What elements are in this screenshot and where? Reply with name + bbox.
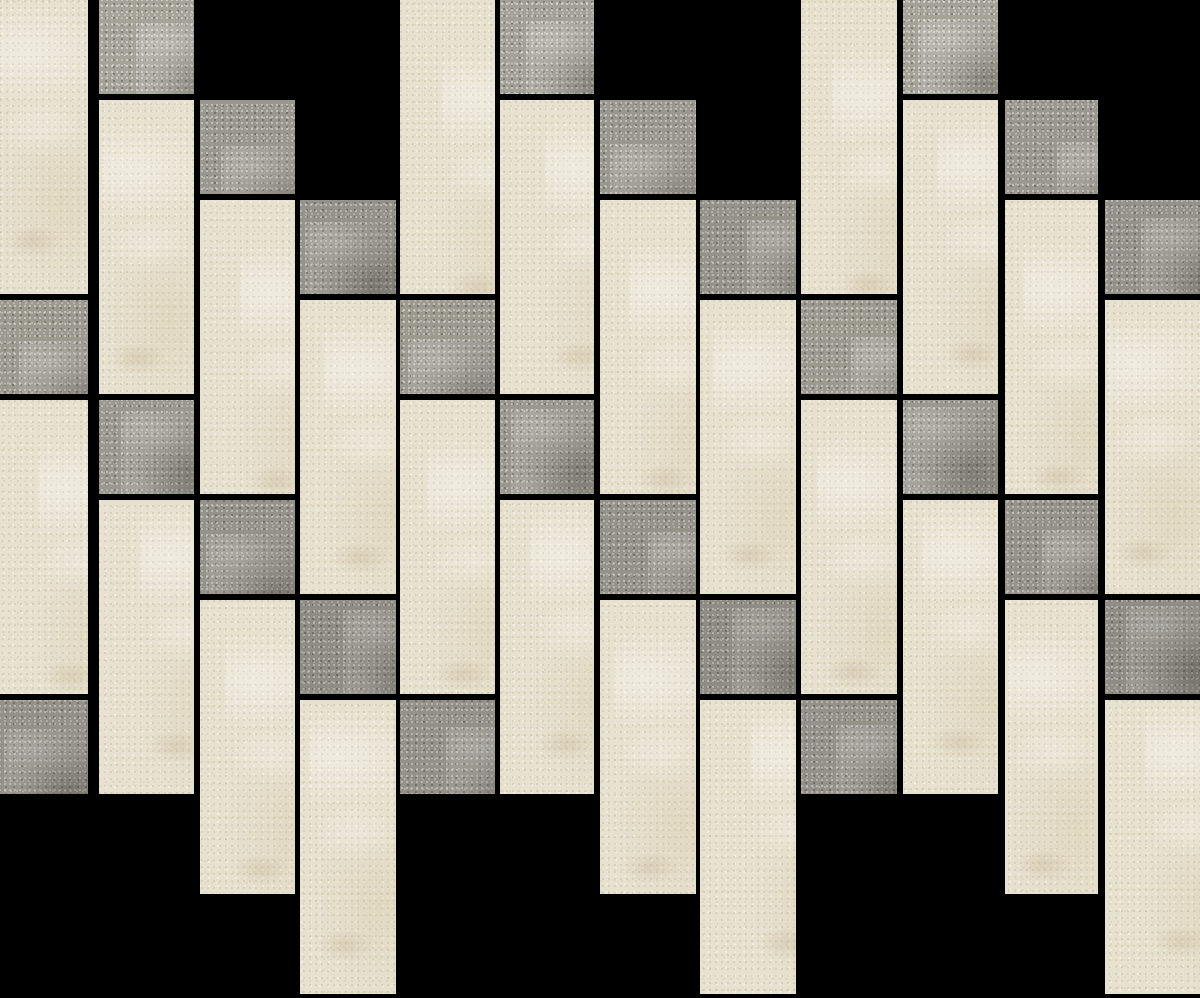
gray-stone-square-tile bbox=[99, 400, 194, 494]
gray-stone-square-tile bbox=[200, 500, 295, 594]
cream-stone-tall-tile bbox=[500, 100, 594, 394]
cream-stone-tall-tile bbox=[1105, 300, 1200, 594]
mosaic-sheet bbox=[0, 0, 1200, 998]
cream-stone-tall-tile bbox=[600, 200, 696, 494]
gray-stone-square-tile bbox=[500, 400, 594, 494]
gray-stone-square-tile bbox=[0, 700, 88, 794]
gray-stone-square-tile bbox=[400, 300, 495, 394]
cream-stone-tall-tile bbox=[99, 100, 194, 394]
gray-stone-square-tile bbox=[99, 0, 194, 94]
cream-stone-tall-tile bbox=[801, 0, 897, 294]
gray-stone-square-tile bbox=[700, 600, 796, 694]
cream-stone-tall-tile bbox=[300, 700, 396, 994]
gray-stone-square-tile bbox=[500, 0, 594, 94]
gray-stone-square-tile bbox=[903, 0, 998, 94]
gray-stone-square-tile bbox=[200, 100, 295, 194]
cream-stone-tall-tile bbox=[0, 400, 88, 694]
cream-stone-tall-tile bbox=[99, 500, 194, 794]
gray-stone-square-tile bbox=[600, 100, 696, 194]
cream-stone-tall-tile bbox=[400, 0, 495, 294]
cream-stone-tall-tile bbox=[903, 100, 998, 394]
cream-stone-tall-tile bbox=[500, 500, 594, 794]
gray-stone-square-tile bbox=[1105, 600, 1200, 694]
cream-stone-tall-tile bbox=[300, 300, 396, 594]
gray-stone-square-tile bbox=[300, 200, 396, 294]
gray-stone-square-tile bbox=[700, 200, 796, 294]
cream-stone-tall-tile bbox=[0, 0, 88, 294]
cream-stone-tall-tile bbox=[903, 500, 998, 794]
gray-stone-square-tile bbox=[903, 400, 998, 494]
cream-stone-tall-tile bbox=[1005, 200, 1098, 494]
cream-stone-tall-tile bbox=[200, 200, 295, 494]
gray-stone-square-tile bbox=[300, 600, 396, 694]
cream-stone-tall-tile bbox=[600, 600, 696, 894]
cream-stone-tall-tile bbox=[700, 300, 796, 594]
cream-stone-tall-tile bbox=[400, 400, 495, 694]
gray-stone-square-tile bbox=[400, 700, 495, 794]
gray-stone-square-tile bbox=[1105, 200, 1200, 294]
cream-stone-tall-tile bbox=[801, 400, 897, 694]
gray-stone-square-tile bbox=[1005, 100, 1098, 194]
gray-stone-square-tile bbox=[0, 300, 88, 394]
cream-stone-tall-tile bbox=[200, 600, 295, 894]
cream-stone-tall-tile bbox=[1005, 600, 1098, 894]
gray-stone-square-tile bbox=[1005, 500, 1098, 594]
gray-stone-square-tile bbox=[801, 700, 897, 794]
gray-stone-square-tile bbox=[600, 500, 696, 594]
cream-stone-tall-tile bbox=[700, 700, 796, 994]
cream-stone-tall-tile bbox=[1105, 700, 1200, 994]
gray-stone-square-tile bbox=[801, 300, 897, 394]
